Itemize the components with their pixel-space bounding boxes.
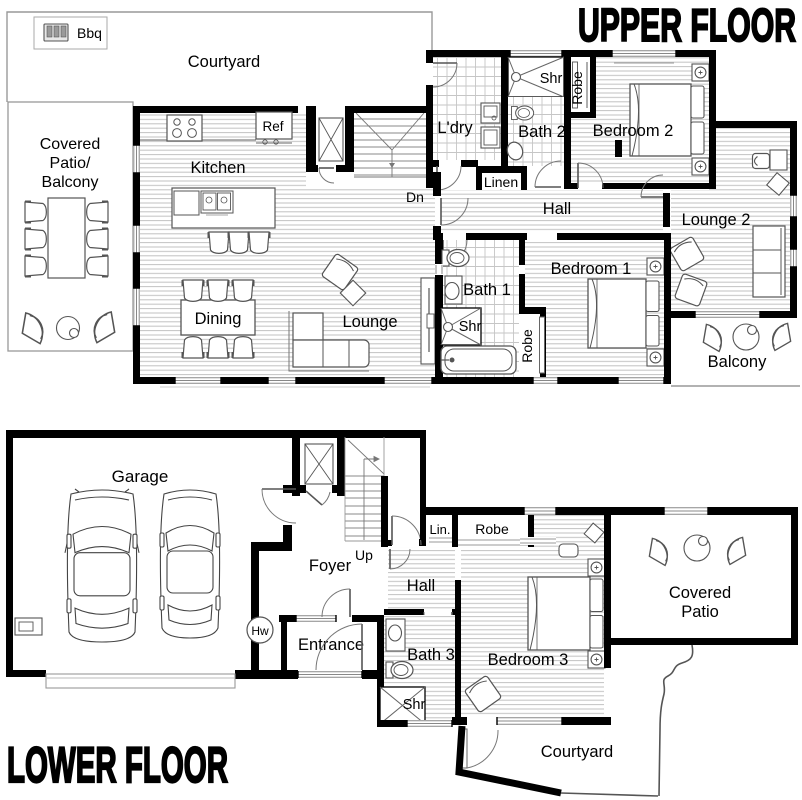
svg-text:Courtyard: Courtyard [541, 743, 613, 761]
svg-text:Linen: Linen [484, 174, 518, 190]
svg-text:Balcony: Balcony [42, 174, 99, 191]
svg-text:Bath 1: Bath 1 [463, 281, 511, 299]
svg-text:Dn: Dn [406, 189, 424, 205]
svg-text:Dining: Dining [195, 310, 242, 328]
svg-text:Bath 2: Bath 2 [518, 123, 566, 141]
svg-text:Hall: Hall [543, 200, 571, 218]
svg-text:Robe: Robe [475, 521, 509, 537]
svg-text:Shr: Shr [540, 71, 563, 87]
svg-text:LOWER FLOOR: LOWER FLOOR [7, 737, 228, 793]
svg-text:Up: Up [355, 547, 373, 563]
svg-text:Garage: Garage [112, 467, 169, 486]
svg-text:Covered: Covered [669, 584, 731, 602]
svg-text:Ref: Ref [262, 119, 283, 134]
svg-text:Bedroom 2: Bedroom 2 [593, 122, 674, 140]
svg-text:Kitchen: Kitchen [190, 159, 245, 177]
svg-text:Lin.: Lin. [430, 522, 451, 537]
svg-text:Balcony: Balcony [708, 353, 767, 371]
svg-text:L'dry: L'dry [437, 119, 473, 137]
svg-text:Patio/: Patio/ [50, 155, 91, 172]
svg-text:Bbq: Bbq [77, 25, 102, 41]
svg-text:Covered: Covered [40, 136, 100, 153]
svg-text:Robe: Robe [569, 71, 585, 105]
svg-text:Lounge 2: Lounge 2 [682, 211, 751, 229]
svg-text:Shr: Shr [459, 319, 482, 335]
svg-text:Entrance: Entrance [298, 636, 364, 654]
svg-text:Courtyard: Courtyard [188, 53, 260, 71]
svg-text:Bedroom 3: Bedroom 3 [488, 651, 569, 669]
svg-text:Bedroom 1: Bedroom 1 [551, 260, 632, 278]
svg-text:Bath 3: Bath 3 [407, 646, 455, 664]
svg-text:Foyer: Foyer [309, 557, 352, 575]
svg-text:Lounge: Lounge [342, 313, 397, 331]
svg-text:UPPER FLOOR: UPPER FLOOR [578, 0, 796, 51]
svg-text:Hall: Hall [407, 577, 435, 595]
svg-text:Hw: Hw [251, 624, 269, 638]
svg-text:Shr: Shr [403, 697, 426, 713]
svg-text:Patio: Patio [681, 603, 719, 621]
svg-text:Robe: Robe [519, 329, 535, 363]
